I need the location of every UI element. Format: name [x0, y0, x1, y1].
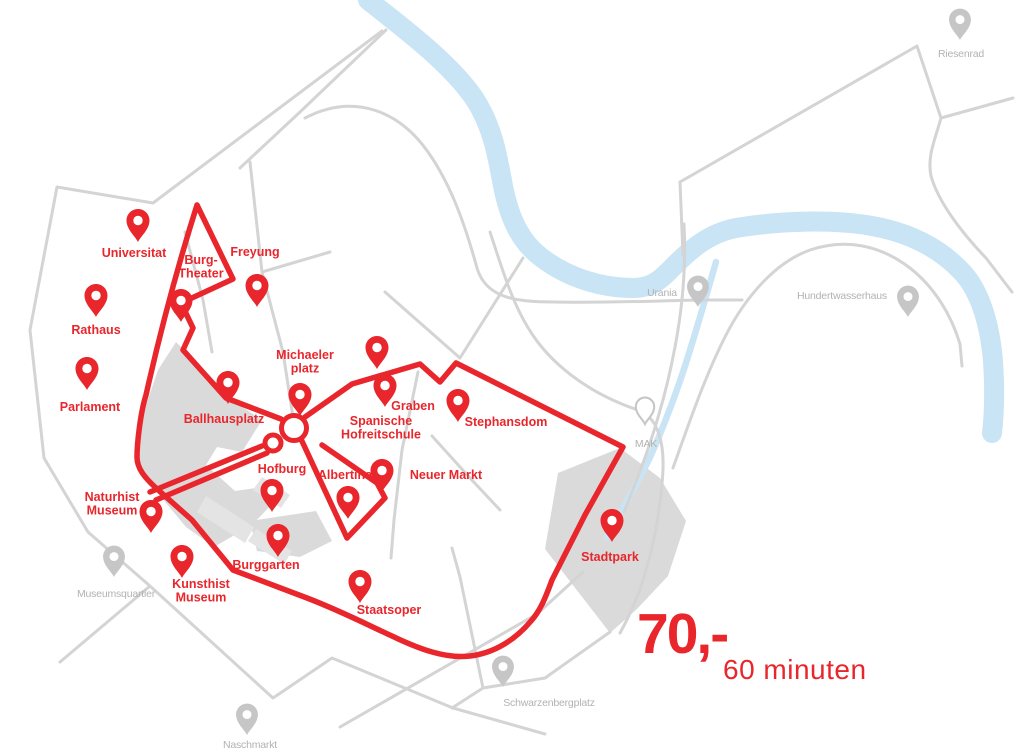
- pin-hole: [273, 531, 282, 540]
- stop-label-burggarten: Burggarten: [232, 558, 299, 572]
- stop-pin-universitaet: [127, 209, 150, 242]
- pin-hole: [223, 378, 232, 387]
- stop-label-staatsoper: Staatsoper: [357, 603, 422, 617]
- pin-hole: [110, 552, 119, 561]
- map-pin-icon: [171, 545, 194, 578]
- pin-hole: [499, 662, 508, 671]
- pin-hole: [295, 390, 304, 399]
- stop-pin-albertina: [337, 486, 360, 519]
- stop-label-kunsthist-museum: KunsthistMuseum: [172, 577, 230, 605]
- landmark-label-urania: Urania: [647, 287, 677, 299]
- pin-hole: [243, 710, 252, 719]
- pin-hole: [252, 281, 261, 290]
- map-pin-icon: [85, 284, 108, 317]
- landmark-pin-hundertwasserhaus: [897, 286, 919, 317]
- stop-pin-staatsoper: [349, 570, 372, 603]
- stop-pin-neuer-markt: [371, 459, 394, 492]
- stop-label-rathaus: Rathaus: [71, 323, 120, 337]
- pin-hole: [267, 486, 276, 495]
- pin-hole: [372, 343, 381, 352]
- landmark-pin-naschmarkt: [236, 704, 258, 735]
- map-pin-icon: [76, 357, 99, 390]
- stop-label-naturhist-museum: NaturhistMuseum: [85, 490, 141, 518]
- stop-label-graben: Graben: [391, 399, 435, 413]
- pin-hole: [453, 396, 462, 405]
- stop-label-freyung: Freyung: [230, 245, 279, 259]
- michaelerplatz-node: [282, 416, 307, 441]
- stop-label-neuer-markt: Neuer Markt: [410, 468, 483, 482]
- pin-hole: [380, 381, 389, 390]
- pin-hole: [377, 466, 386, 475]
- map-pin-icon: [103, 546, 125, 577]
- landmark-label-riesenrad: Riesenrad: [938, 48, 984, 60]
- stop-label-spanische-hofreitschule: SpanischeHofreitschule: [341, 414, 421, 442]
- stop-pin-kunsthist-museum: [171, 545, 194, 578]
- stop-label-burgtheater: Burg-Theater: [178, 253, 223, 281]
- stop-pin-parlament: [76, 357, 99, 390]
- map-graphic: UniversitatRathausParlamentBurg-TheaterF…: [0, 0, 1024, 751]
- stop-pin-graben: [366, 336, 389, 369]
- pin-hole: [82, 364, 91, 373]
- pin-hole: [904, 292, 913, 301]
- pin-hole: [133, 216, 142, 225]
- stop-label-universitaet: Universitat: [102, 246, 167, 260]
- map-pin-icon: [140, 500, 163, 533]
- heldenplatz-loop-node: [265, 435, 281, 451]
- landmark-label-museumsquartier: Museumsquartier: [77, 588, 156, 600]
- pin-hole: [177, 552, 186, 561]
- map-pin-icon: [349, 570, 372, 603]
- pin-hole: [956, 15, 965, 24]
- map-pin-icon: [371, 459, 394, 492]
- stop-label-stadtpark: Stadtpark: [581, 550, 639, 564]
- stop-label-stephansdom: Stephansdom: [465, 415, 548, 429]
- pin-hole: [607, 516, 616, 525]
- pin-hole: [641, 403, 649, 411]
- pin-hole: [343, 493, 352, 502]
- map-pin-icon: [337, 486, 360, 519]
- map-pin-icon: [246, 274, 269, 307]
- landmark-label-hundertwasserhaus: Hundertwasserhaus: [797, 290, 887, 302]
- stop-pin-freyung: [246, 274, 269, 307]
- stop-label-albertina: Albertina: [318, 468, 373, 482]
- pin-hole: [176, 296, 185, 305]
- landmark-label-naschmarkt: Naschmarkt: [223, 739, 277, 751]
- landmark-pin-riesenrad: [949, 9, 971, 40]
- vienna-tour-map: UniversitatRathausParlamentBurg-TheaterF…: [0, 0, 1024, 751]
- pin-hole: [91, 291, 100, 300]
- map-pin-icon: [949, 9, 971, 40]
- price-amount: 70,-: [637, 606, 727, 663]
- landmark-label-schwarzenbergplatz: Schwarzenbergplatz: [503, 697, 595, 709]
- stop-label-parlament: Parlament: [60, 400, 121, 414]
- landmark-pin-museumsquartier: [103, 546, 125, 577]
- landmark-label-mak: MAK: [635, 438, 657, 450]
- map-pin-icon: [236, 704, 258, 735]
- stop-pin-naturhist-museum: [140, 500, 163, 533]
- pin-hole: [146, 507, 155, 516]
- map-pin-icon: [897, 286, 919, 317]
- stop-label-hofburg: Hofburg: [258, 462, 307, 476]
- stop-label-ballhausplatz: Ballhausplatz: [184, 412, 265, 426]
- pin-hole: [355, 577, 364, 586]
- stop-pin-rathaus: [85, 284, 108, 317]
- map-pin-icon: [127, 209, 150, 242]
- map-pin-icon: [366, 336, 389, 369]
- pin-hole: [694, 282, 703, 291]
- price-duration: 60 minuten: [723, 656, 867, 684]
